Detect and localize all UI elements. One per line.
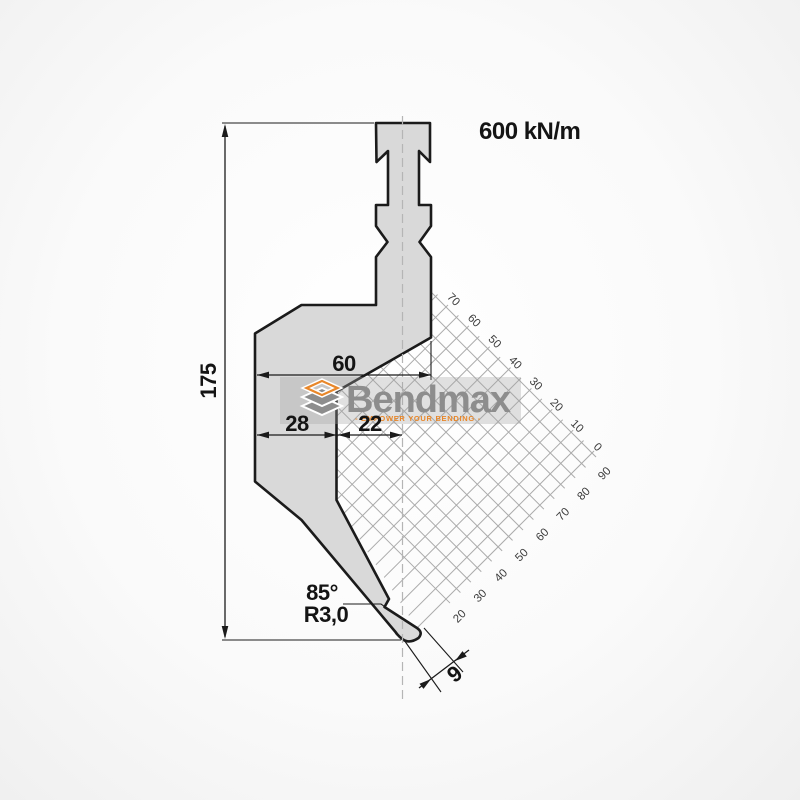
technical-drawing: 7060504030201009080706050403020 — [0, 0, 800, 800]
dim-height-label: 175 — [196, 363, 221, 398]
dim-back-width-label: 28 — [285, 411, 309, 436]
watermark: Bendmax - EMPOWER YOUR BENDING - — [280, 377, 521, 424]
grid-angle-label: 20 — [451, 608, 469, 626]
grid-angle-label: 30 — [472, 588, 490, 606]
grid-angle-label: 90 — [596, 465, 614, 483]
force-rating-label: 600 kN/m — [479, 118, 580, 145]
dim-tip-offset-label: 22 — [358, 411, 382, 436]
grid-angle-label: 70 — [555, 506, 573, 524]
grid-angle-label: 60 — [534, 526, 552, 544]
dim-tip-land-label: 9 — [442, 660, 467, 687]
dim-tip-radius-label: R3,0 — [304, 602, 349, 627]
grid-line — [127, 0, 495, 355]
grid-line — [381, 0, 745, 335]
drawing-canvas: 7060504030201009080706050403020 — [0, 0, 800, 800]
dim-width-label: 60 — [332, 351, 356, 376]
grid-line — [392, 0, 756, 325]
grid-angle-label: 80 — [575, 486, 593, 504]
grid-angle-label: 40 — [493, 567, 511, 585]
grid-angle-label: 50 — [513, 547, 531, 565]
